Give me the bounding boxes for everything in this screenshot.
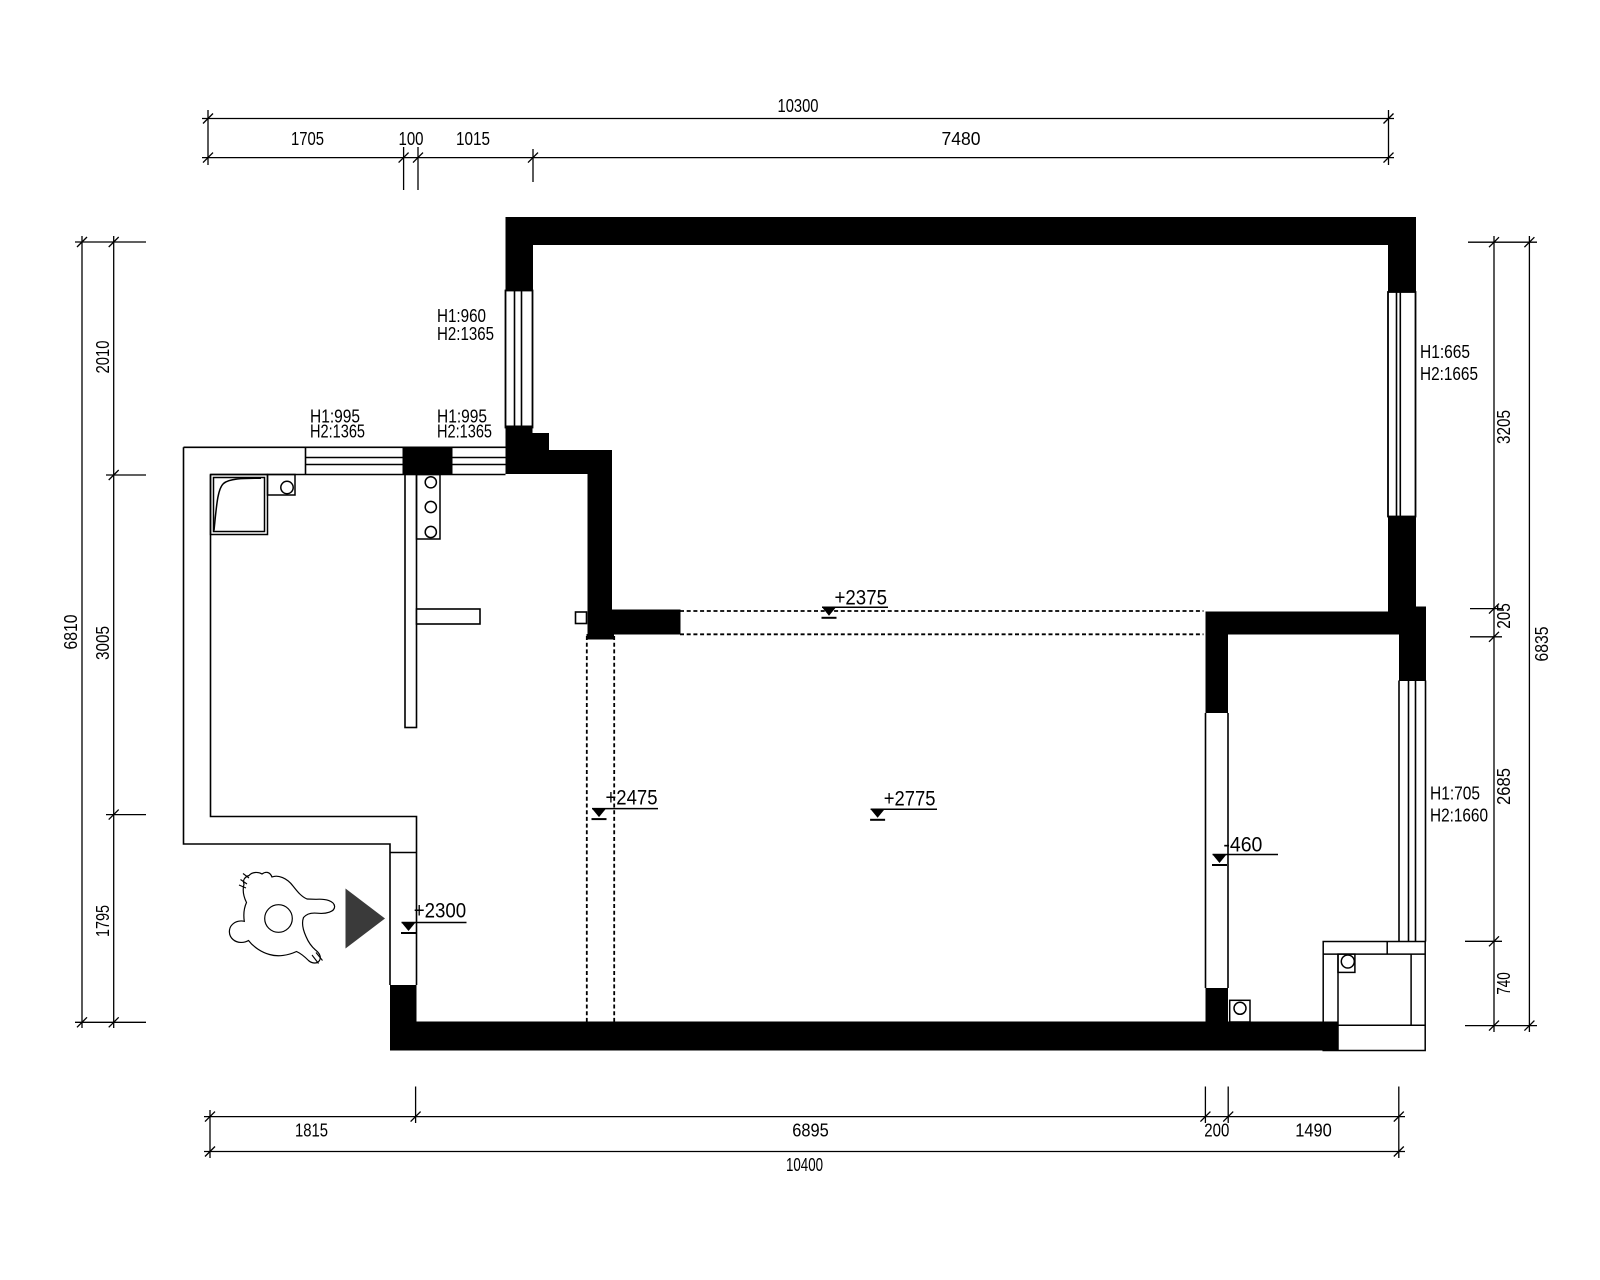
svg-text:740: 740 [1494, 972, 1514, 995]
svg-text:6810: 6810 [61, 615, 81, 650]
svg-text:3205: 3205 [1494, 410, 1514, 444]
svg-text:+2375: +2375 [835, 587, 888, 610]
svg-text:3005: 3005 [93, 626, 113, 660]
svg-text:H1:705: H1:705 [1430, 784, 1480, 804]
svg-text:H2:1365: H2:1365 [437, 422, 492, 442]
svg-text:H1:665: H1:665 [1420, 342, 1470, 362]
svg-text:1015: 1015 [456, 129, 490, 149]
svg-text:H1:960: H1:960 [437, 306, 486, 326]
svg-text:200: 200 [1204, 1121, 1229, 1141]
svg-text:H2:1365: H2:1365 [310, 422, 365, 442]
svg-text:6895: 6895 [792, 1121, 829, 1141]
svg-text:6835: 6835 [1532, 627, 1552, 662]
svg-text:10400: 10400 [786, 1155, 823, 1175]
svg-text:+2300: +2300 [414, 900, 467, 923]
svg-text:7480: 7480 [942, 129, 981, 149]
svg-text:+2775: +2775 [884, 788, 936, 811]
svg-text:1795: 1795 [93, 905, 113, 937]
svg-text:2685: 2685 [1494, 768, 1514, 805]
svg-text:100: 100 [399, 129, 424, 149]
svg-text:1705: 1705 [291, 129, 324, 149]
svg-text:1815: 1815 [295, 1121, 328, 1141]
svg-text:H2:1665: H2:1665 [1420, 364, 1478, 384]
svg-text:-460: -460 [1223, 834, 1262, 857]
svg-text:205: 205 [1494, 603, 1514, 629]
svg-text:H2:1365: H2:1365 [437, 324, 494, 344]
svg-text:10300: 10300 [778, 96, 819, 116]
svg-text:1490: 1490 [1295, 1121, 1332, 1141]
svg-text:+2475: +2475 [606, 787, 658, 810]
svg-text:2010: 2010 [93, 341, 113, 374]
svg-text:H2:1660: H2:1660 [1430, 806, 1488, 826]
